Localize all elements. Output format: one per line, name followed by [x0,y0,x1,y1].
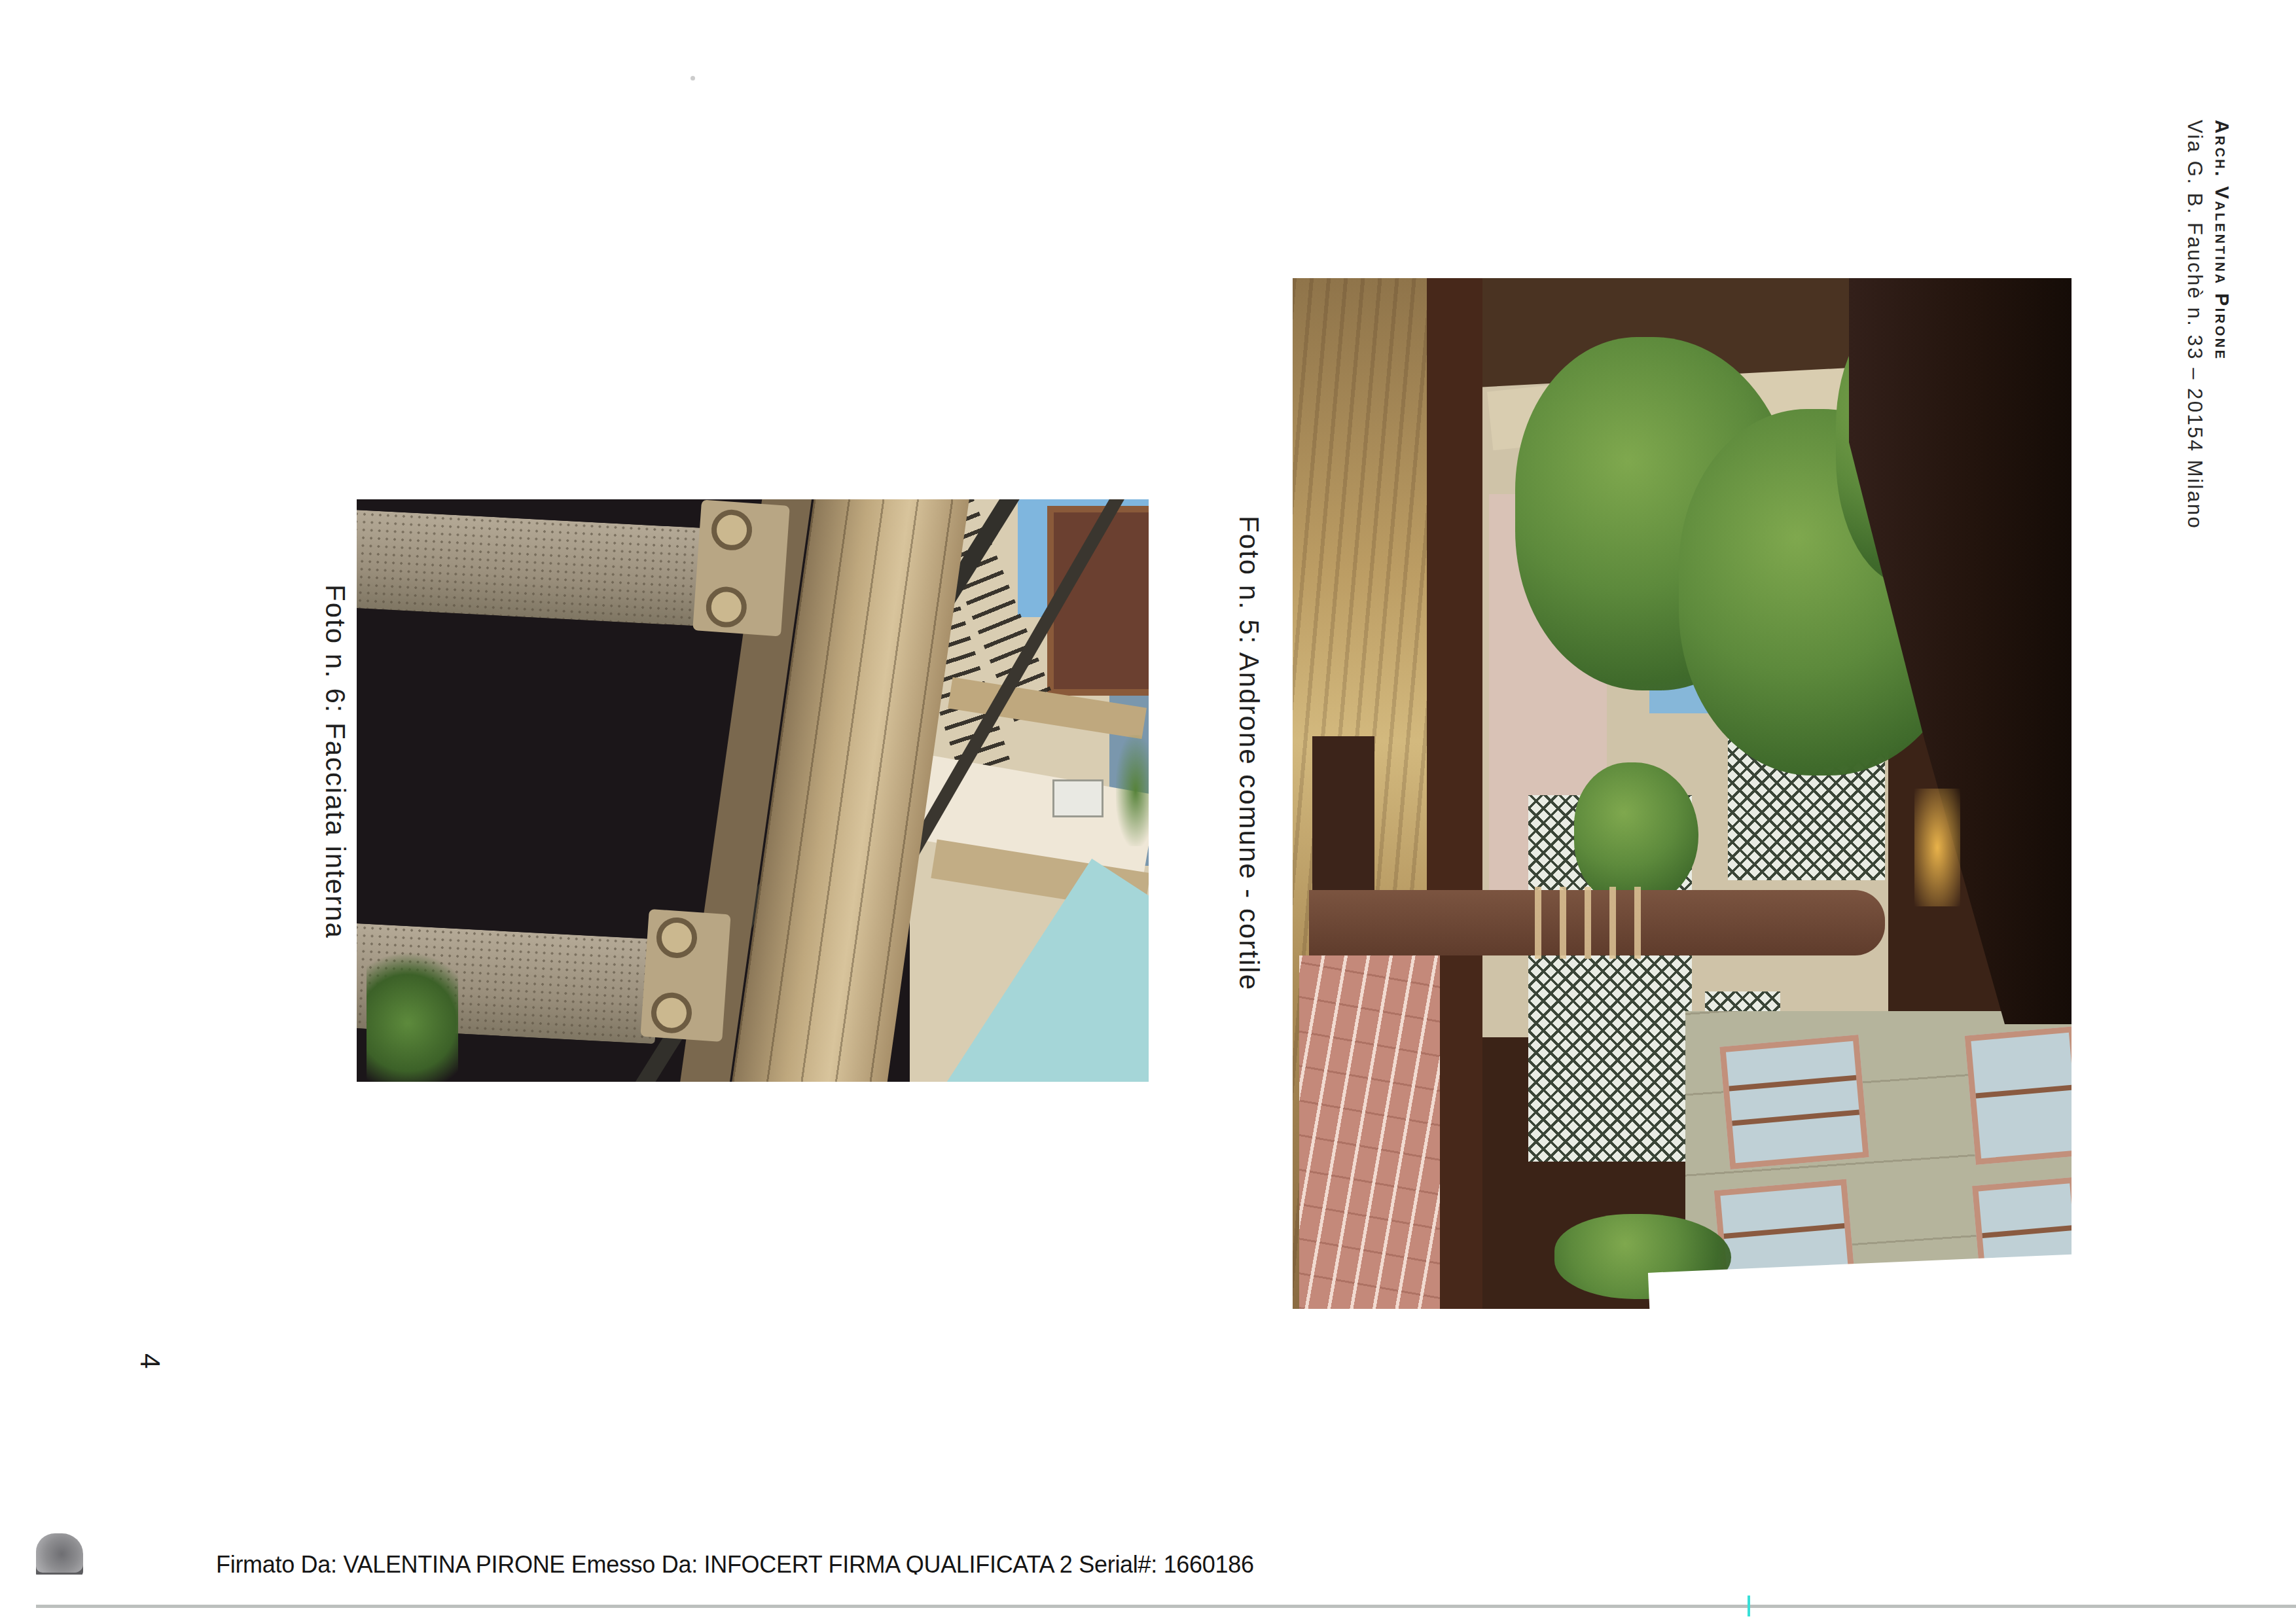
photo5-caption: Foto n. 5: Androne comune - cortile [1233,516,1265,991]
photo6-ionic-capital [640,909,730,1042]
scanned-document-page: Arch. Valentina Pirone Via G. B. Fauchè … [0,0,2296,1623]
photo5-window [1965,1026,2072,1165]
scan-dust-speck [691,76,695,80]
photo6-granite-column [357,510,709,626]
photo5-window [1719,1035,1869,1169]
page-number: 4 [135,1353,165,1368]
photo-5-androne-cortile [1293,278,2072,1309]
volute-icon [650,991,693,1035]
photo-6-facciata-interna [357,499,1149,1082]
photo5-column-capital-rings [1535,887,1646,959]
photo6-plant [367,951,458,1082]
signature-text: Firmato Da: VALENTINA PIRONE Emesso Da: … [216,1551,1254,1575]
volute-icon [705,585,748,628]
volute-icon [655,916,698,959]
architect-address: Via G. B. Fauchè n. 33 – 20154 Milano [2181,120,2208,529]
photo5-column-shaft [1312,736,1374,897]
volute-icon [710,508,753,552]
photo5-tree-foliage [1574,762,1698,906]
photo5-sunlight-glow [1914,789,1960,906]
photo6-ac-unit [1052,779,1103,817]
letterhead: Arch. Valentina Pirone Via G. B. Fauchè … [2181,120,2236,529]
photo6-ionic-capital [692,500,790,637]
bottom-rule [36,1605,2296,1608]
architect-name: Arch. Valentina Pirone [2208,120,2236,529]
infocert-seal-icon [36,1533,83,1575]
photo5-brick-paving [1299,955,1440,1309]
scan-artifact-tick [1748,1596,1750,1616]
signature-strip: Firmato Da: VALENTINA PIRONE Emesso Da: … [33,1530,2263,1575]
photo6-caption: Foto n. 6: Facciata interna [319,584,351,939]
photo6-plant [1116,735,1149,846]
